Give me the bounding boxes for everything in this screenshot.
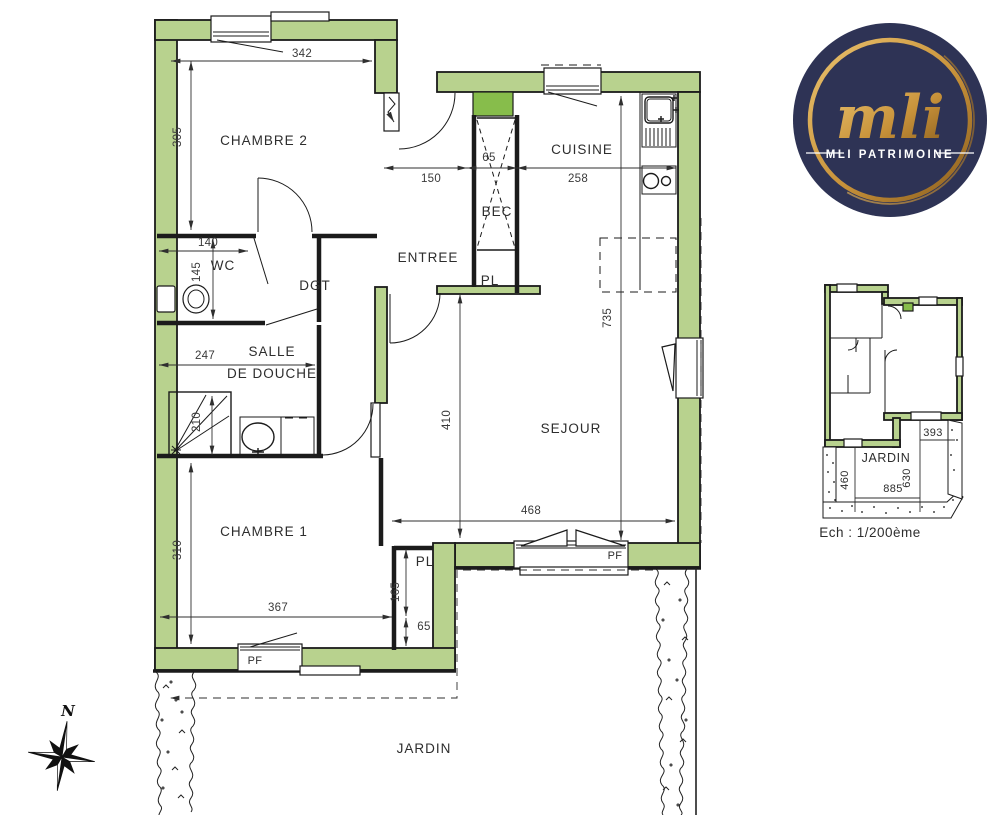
garden-label: JARDIN: [397, 741, 452, 756]
dim-sejour-width: 468: [521, 505, 541, 517]
vegetation-right: [655, 568, 696, 815]
dim-bec-width: 65: [482, 152, 495, 164]
site-plan-partitions: [830, 305, 901, 413]
stove-icon: [642, 166, 676, 194]
vegetation-left: [155, 672, 195, 815]
dim-pl-height: 165: [390, 582, 402, 602]
kitchen-sink-icon: [642, 94, 679, 147]
room-label-entree: ENTREE: [398, 250, 459, 265]
closet-label-chambre1: PL: [416, 554, 435, 569]
dim-chambre2-width: 342: [292, 48, 312, 60]
company-logo: mli MLI PATRIMOINE: [772, 2, 1002, 239]
logo-name: MLI PATRIMOINE: [826, 149, 954, 161]
room-label-dgt: DGT: [299, 278, 331, 293]
dim-chambre2-height: 305: [172, 127, 184, 147]
chambre2-door-icon: [258, 178, 312, 232]
dim-wc-height: 145: [191, 262, 203, 282]
window-label-chambre1-pf: PF: [248, 655, 263, 667]
site-plan-walls: [825, 284, 963, 447]
room-label-sejour: SEJOUR: [541, 421, 602, 436]
dim-chambre1-height: 310: [172, 540, 184, 560]
entree-sejour-door-icon: [390, 293, 440, 343]
dim-douche-width: 247: [195, 350, 215, 362]
room-label-salle: SALLE: [248, 344, 295, 359]
appliance-reservation: [600, 238, 676, 292]
dim-douche-height: 210: [191, 412, 203, 432]
site-dim-630: 630: [901, 468, 913, 488]
cuisine-window-icon: [541, 65, 601, 106]
dim-chambre1-width: 367: [268, 602, 288, 614]
logo-monogram: mli: [835, 83, 944, 153]
site-garden-label: JARDIN: [862, 451, 911, 465]
douche-door-icon: [266, 309, 317, 325]
window-label-sejour-pf: PF: [608, 550, 623, 562]
dim-cuisine-width: 258: [568, 173, 588, 185]
dim-entree-width: 150: [421, 173, 441, 185]
closet-label-entree: PL: [481, 273, 500, 288]
room-label-cuisine: CUISINE: [551, 142, 613, 157]
entrance-door-icon: [384, 93, 455, 149]
room-label-chambre1: CHAMBRE 1: [220, 524, 308, 539]
north-label: N: [60, 702, 76, 720]
room-label-de-douche: DE DOUCHE: [227, 366, 317, 381]
dim-sejour-west-height: 410: [441, 410, 453, 430]
scale-label: Ech : 1/200ème: [819, 525, 921, 540]
washbasin-icon: [240, 417, 314, 458]
wc-door-icon: [253, 235, 268, 284]
site-dim-393: 393: [923, 427, 943, 439]
dgt-sejour-door-icon: [323, 403, 380, 457]
site-dim-885: 885: [883, 483, 903, 495]
sejour-east-window-icon: [662, 338, 703, 398]
room-label-chambre2: CHAMBRE 2: [220, 133, 308, 148]
kitchen-fixtures: [600, 92, 679, 292]
toilet-icon: [157, 285, 209, 313]
site-plan: 393 460 630 885 JARDIN Ech : 1/200ème: [819, 284, 963, 540]
compass-rose-icon: N: [24, 702, 100, 795]
dim-wc-width: 140: [198, 237, 218, 249]
room-label-bec: BEC: [482, 204, 513, 219]
bec-duct-filled: [473, 92, 513, 116]
dim-pl-width: 65: [417, 621, 430, 633]
room-label-wc: WC: [211, 258, 236, 273]
dim-sejour-height: 735: [602, 308, 614, 328]
bec-shaft: [477, 120, 515, 248]
floor-plan-drawing: 342 305 140 145 247 210 150 65 258 735 4…: [0, 0, 1002, 815]
site-dim-460: 460: [839, 470, 851, 490]
floor-plan-sheet: 342 305 140 145 247 210 150 65 258 735 4…: [0, 0, 1002, 815]
